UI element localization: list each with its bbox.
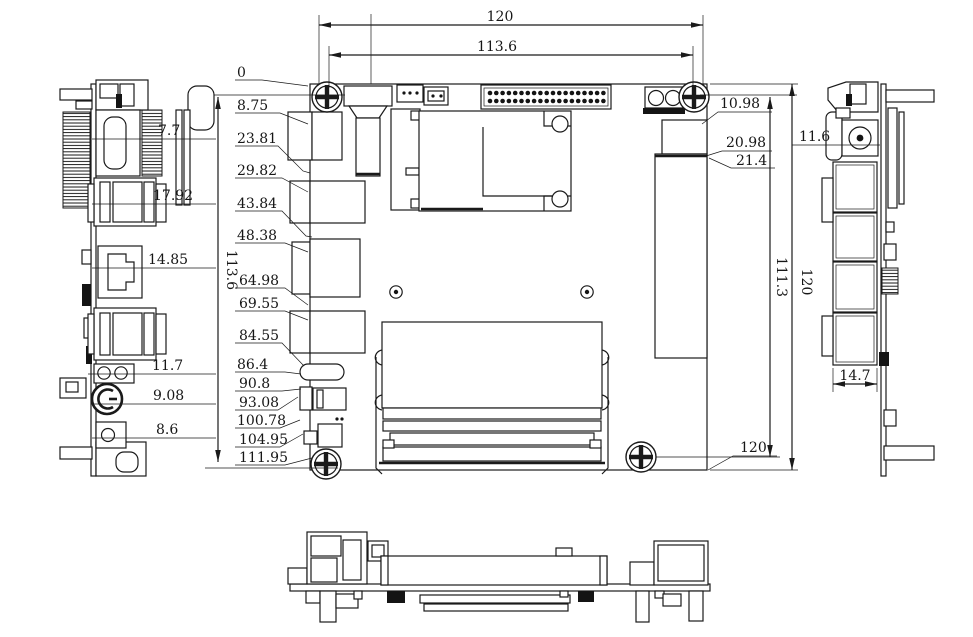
dim-bottom-right-width: 120 <box>708 440 777 470</box>
usb-connector-2 <box>290 311 310 353</box>
lan-port <box>292 242 310 294</box>
right-offset-callouts: 10.98 20.98 21.4 <box>702 96 775 169</box>
mpcie-module <box>391 109 571 211</box>
dim-label-offset-100-78: 100.78 <box>237 413 286 429</box>
dim-label-offset-64-98: 64.98 <box>239 273 279 289</box>
bracket-peg <box>886 90 934 102</box>
dim-label-7-7: 7.7 <box>158 123 180 139</box>
dim-label-offset-29-82: 29.82 <box>237 163 277 179</box>
module-screw-hole <box>552 116 568 132</box>
rear-plate <box>888 108 897 208</box>
dim-label-offset-111-95: 111.95 <box>239 450 288 466</box>
dim-label-offset-21-4: 21.4 <box>736 153 767 169</box>
front-view <box>288 532 710 622</box>
hdmi-top-flange <box>344 86 392 106</box>
dim-label-offset-93-08: 93.08 <box>239 395 279 411</box>
dim-label-offset-43-84: 43.84 <box>237 196 277 212</box>
dim-label-14-85: 14.85 <box>148 252 188 268</box>
hdmi-connector <box>288 112 312 160</box>
sodimm-socket <box>375 322 609 474</box>
dim-label-11-7: 11.7 <box>152 358 183 374</box>
bracket-arm <box>188 86 214 130</box>
dim-label-offset-86-4: 86.4 <box>237 357 268 373</box>
board-dimension-drawing: 120 113.6 113.6 0 8.75 23.81 29.82 43.84… <box>0 0 973 637</box>
dim-label-top-113-6: 113.6 <box>477 39 517 55</box>
corner-screw-top-right <box>679 82 709 112</box>
dim-label-left-113-6: 113.6 <box>223 250 239 290</box>
standoff-leg <box>320 591 336 622</box>
standoff-leg <box>689 591 703 621</box>
connector-stack-2 <box>833 213 877 261</box>
dim-label-top-120: 120 <box>487 9 514 25</box>
mechanical-drawing-sheet: 120 113.6 113.6 0 8.75 23.81 29.82 43.84… <box>0 0 973 637</box>
hdmi-side-comb <box>63 112 90 208</box>
mounting-hole <box>390 286 402 298</box>
bottom-peg <box>884 446 934 460</box>
dim-label-14-7: 14.7 <box>839 368 870 384</box>
button-top <box>318 424 342 447</box>
dim-label-11-6: 11.6 <box>799 129 830 145</box>
dim-label-17-92: 17.92 <box>153 188 193 204</box>
front-underside <box>306 591 703 622</box>
dim-label-offset-84-55: 84.55 <box>239 328 279 344</box>
dim-label-offset-90-8: 90.8 <box>239 376 270 392</box>
dim-label-offset-69-55: 69.55 <box>239 296 279 312</box>
bracket-peg <box>60 447 92 459</box>
corner-screw-bottom-left <box>311 449 341 479</box>
dim-label-8-6: 8.6 <box>156 422 178 438</box>
corner-screw-bottom-right <box>626 442 656 472</box>
front-center-module <box>381 556 607 585</box>
side-header <box>882 268 898 294</box>
dim-label-right-120: 120 <box>798 269 814 296</box>
pcb-edge <box>91 84 96 476</box>
gpio-pin-header <box>481 85 611 109</box>
dim-label-9-08: 9.08 <box>153 388 184 404</box>
connector-stack-4 <box>833 313 877 365</box>
dim-label-111-3: 111.3 <box>773 257 789 297</box>
dim-label-offset-104-95: 104.95 <box>239 432 288 448</box>
dim-label-offset-48-38: 48.38 <box>237 228 277 244</box>
left-side-view: 7.7 17.92 14.85 11.7 9.08 8.6 <box>60 80 216 476</box>
connector-stack-3 <box>833 262 877 312</box>
bracket-peg <box>60 89 92 100</box>
edge-connector <box>655 120 707 358</box>
dim-top-hole-span: 113.6 <box>329 39 693 88</box>
standoff-leg <box>636 591 649 622</box>
dim-label-offset-20-98: 20.98 <box>726 135 766 151</box>
dim-label-offset-10-98: 10.98 <box>720 96 760 112</box>
mounting-hole <box>581 286 593 298</box>
corner-screw-top-left <box>312 82 342 112</box>
dim-label-bottom-120: 120 <box>740 440 767 456</box>
dim-label-offset-0: 0 <box>237 65 246 81</box>
dim-label-offset-23-81: 23.81 <box>237 131 277 147</box>
terminal-tab <box>300 364 344 380</box>
dim-label-offset-8-75: 8.75 <box>237 98 268 114</box>
top-view <box>288 82 709 479</box>
connector-stack-1 <box>833 162 877 212</box>
module-screw-hole <box>552 191 568 207</box>
